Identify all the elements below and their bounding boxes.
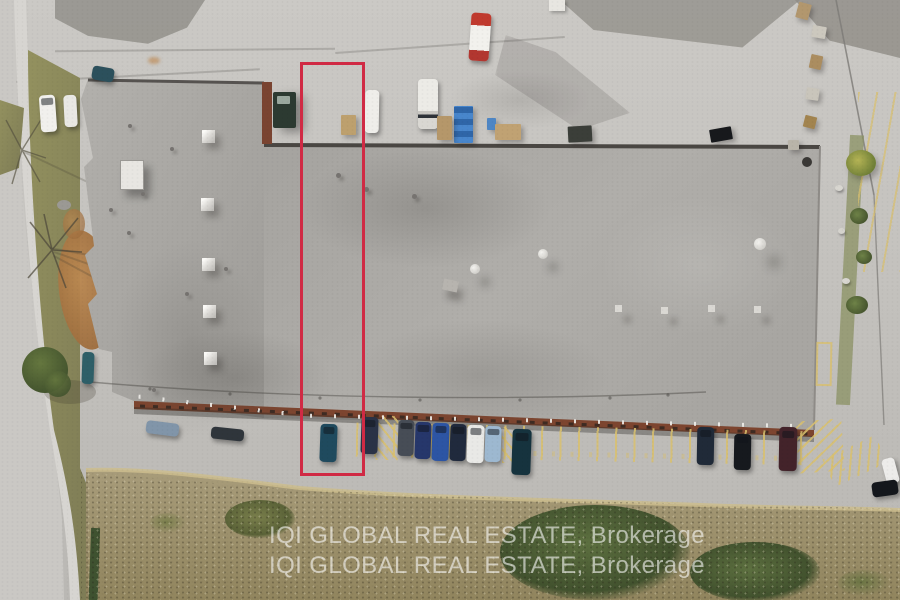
pallet-stack (437, 116, 452, 140)
watermark-line-2: IQI GLOBAL REAL ESTATE, Brokerage (269, 552, 705, 580)
roof-vent (152, 388, 156, 392)
roof-vent (412, 194, 417, 199)
parked-pickup (779, 427, 798, 471)
building-layer (0, 0, 900, 600)
roof-vent (141, 192, 145, 196)
roof-vent (185, 292, 189, 296)
delivery-truck-red (468, 12, 491, 61)
parked-car (484, 426, 501, 463)
pallet-stack (805, 87, 820, 101)
car-windshield (435, 426, 447, 433)
east-lot-stripes (858, 92, 900, 272)
parked-suv (734, 434, 752, 470)
roof-vent (128, 124, 132, 128)
car-windshield (470, 428, 482, 435)
pallet-stack (495, 124, 521, 140)
roof-hvac-vent (202, 258, 215, 271)
parked-car (81, 352, 94, 384)
roof-hvac-vent (201, 198, 214, 211)
roof-hvac-vent (204, 352, 217, 365)
roof-vent (754, 238, 766, 250)
roof-vent (470, 264, 480, 274)
dumpster-lid (277, 96, 290, 104)
material-stack-dark (568, 125, 593, 142)
blue-tarp-stack (454, 106, 473, 143)
parked-car (511, 429, 532, 476)
car-windshield (737, 437, 749, 444)
roof-vent (170, 147, 174, 151)
reserved-box-marking (816, 342, 833, 386)
roof-hvac-vent (203, 305, 216, 318)
car-windshield (453, 427, 464, 434)
car-windshield (401, 423, 412, 430)
car-windshield (488, 429, 499, 436)
landscape-rock (842, 278, 850, 284)
car-windshield (41, 98, 53, 105)
parked-car (397, 420, 414, 457)
cargo-van-white (365, 90, 380, 133)
parked-van (63, 95, 78, 128)
brush-bush (690, 542, 820, 600)
parked-car (697, 427, 715, 465)
left-building-roof (81, 79, 264, 418)
roof-drain-circle (802, 157, 812, 167)
brush-bush (150, 513, 186, 533)
car-windshield (782, 430, 795, 438)
aerial-photo-scene: IQI GLOBAL REAL ESTATE, Brokerage IQI GL… (0, 0, 900, 600)
watermark-line-1: IQI GLOBAL REAL ESTATE, Brokerage (269, 522, 705, 550)
roof-vent (109, 208, 113, 212)
roof-vent (661, 307, 668, 314)
car-windshield (364, 420, 376, 427)
roof-vent (224, 267, 228, 271)
box-truck-white (418, 79, 438, 129)
roof-vent (754, 306, 761, 313)
roof-hvac-vent (202, 130, 215, 143)
parked-car (449, 424, 466, 462)
parked-car (39, 94, 58, 132)
car-windshield (418, 425, 429, 432)
landscape-rock (838, 228, 845, 234)
pallet-stack (811, 25, 827, 39)
parked-car (466, 425, 484, 464)
bush-green (856, 250, 872, 264)
pallet-stack (788, 140, 799, 150)
unit-highlight-outline (300, 62, 365, 476)
parked-car (414, 422, 431, 460)
landscape-rock (835, 185, 843, 191)
brown-wall (262, 82, 272, 144)
bush-green (846, 296, 868, 314)
no-parking-hatch (376, 416, 399, 460)
car-windshield (515, 432, 529, 441)
roof-vent (708, 305, 715, 312)
bush-green (850, 208, 868, 224)
brush-bush (838, 570, 890, 596)
roof-vent (615, 305, 622, 312)
parked-car (431, 423, 449, 462)
roof-vent (538, 249, 548, 259)
bush-yellow-green (846, 150, 876, 176)
roof-vent (127, 231, 131, 235)
car-windshield (700, 430, 712, 437)
roof-hvac-unit (120, 160, 144, 190)
